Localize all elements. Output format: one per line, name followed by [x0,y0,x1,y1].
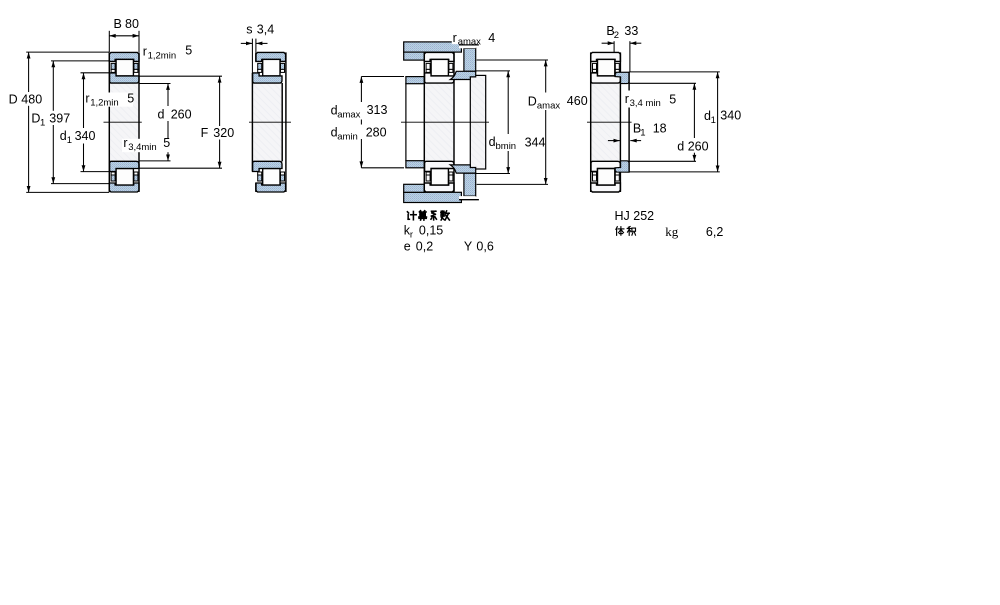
svg-text:2: 2 [614,30,619,41]
svg-text:D: D [9,93,18,107]
svg-text:r: r [453,31,457,45]
svg-text:5: 5 [185,44,192,58]
svg-text:r: r [143,45,147,59]
svg-text:6,2: 6,2 [706,225,723,239]
svg-text:0,6: 0,6 [476,239,493,253]
svg-text:280: 280 [366,125,387,139]
svg-text:260: 260 [171,107,192,121]
svg-text:amax: amax [337,109,360,120]
svg-text:313: 313 [367,103,388,117]
svg-text:5: 5 [163,136,170,150]
svg-text:F: F [201,126,209,140]
svg-text:320: 320 [213,126,234,140]
svg-text:d: d [677,140,684,154]
svg-text:1: 1 [40,118,45,129]
svg-text:r: r [123,136,127,150]
svg-text:0,2: 0,2 [416,239,433,253]
svg-text:r: r [625,92,629,106]
svg-text:amin: amin [337,131,358,142]
svg-text:1,2min: 1,2min [90,98,119,109]
svg-text:D: D [528,94,537,108]
svg-text:80: 80 [125,17,139,31]
svg-text:s: s [246,22,252,36]
svg-text:amax: amax [537,100,560,111]
svg-text:18: 18 [653,122,667,136]
svg-text:480: 480 [21,93,42,107]
svg-text:B: B [114,17,122,31]
svg-text:260: 260 [688,139,709,153]
svg-text:3,4min: 3,4min [128,142,157,153]
svg-text:3,4: 3,4 [257,22,274,36]
svg-text:340: 340 [720,109,741,123]
svg-text:e: e [404,240,411,254]
svg-text:kg: kg [665,224,679,239]
svg-text:amax: amax [458,37,481,48]
svg-text:5: 5 [669,92,676,106]
svg-text:340: 340 [75,129,96,143]
svg-text:33: 33 [624,24,638,38]
svg-text:1,2min: 1,2min [148,50,177,61]
svg-text:4: 4 [488,31,495,45]
svg-text:397: 397 [49,112,70,126]
svg-text:3,4 min: 3,4 min [630,98,661,109]
svg-text:5: 5 [127,92,134,106]
svg-text:d: d [60,129,67,143]
svg-text:1: 1 [711,115,716,126]
svg-text:bmin: bmin [496,141,517,152]
svg-text:d: d [158,107,165,121]
svg-text:1: 1 [67,135,72,146]
svg-text:1: 1 [640,127,645,138]
svg-text:460: 460 [567,94,588,108]
svg-text:Y: Y [464,240,473,254]
svg-text:344: 344 [525,135,546,149]
svg-text:0,15: 0,15 [419,223,443,237]
svg-text:HJ 252: HJ 252 [615,209,655,223]
svg-text:r: r [85,92,89,106]
